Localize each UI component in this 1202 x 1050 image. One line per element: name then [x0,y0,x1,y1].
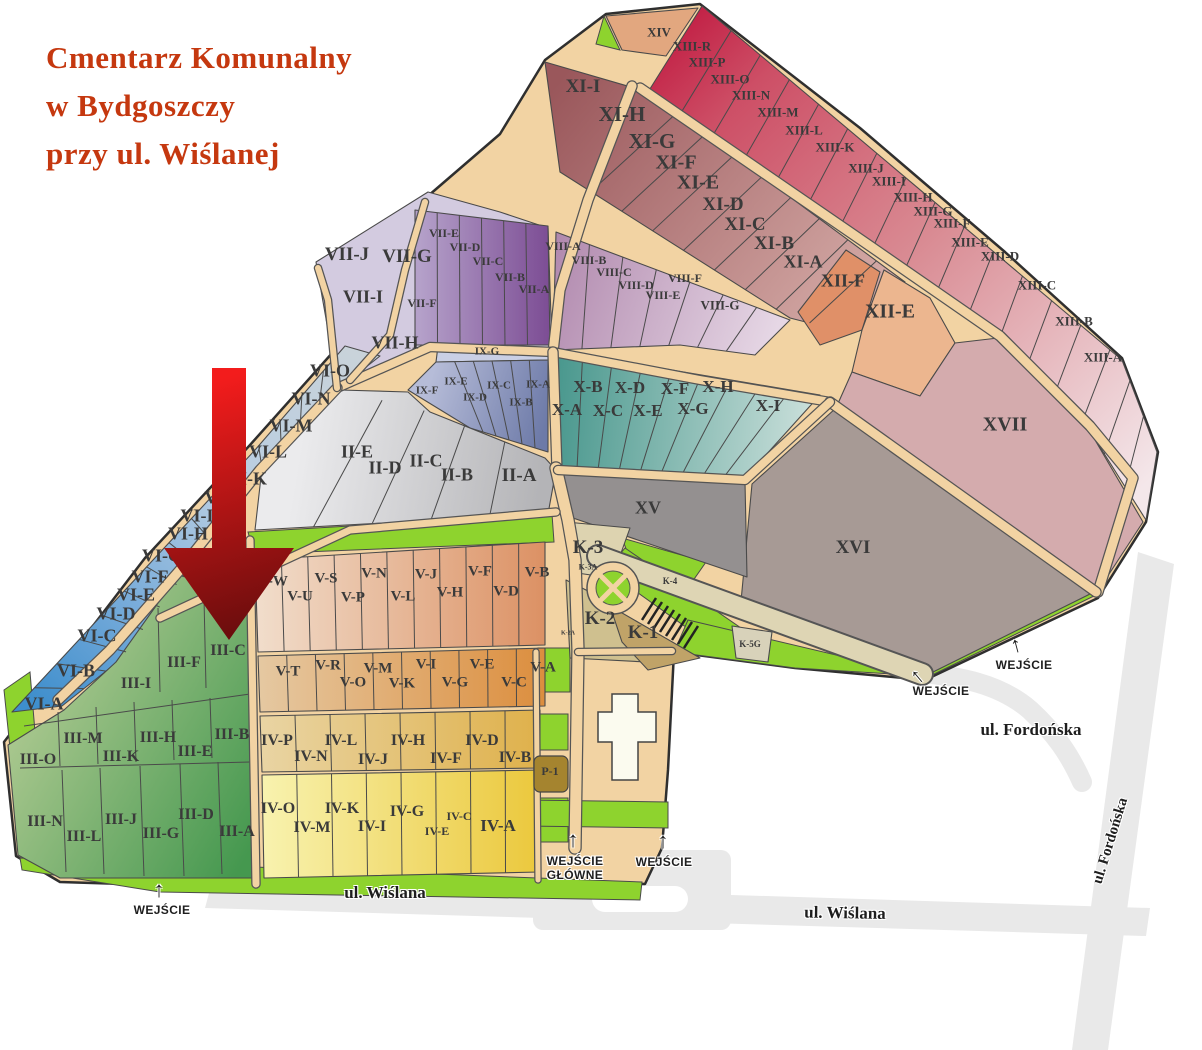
section-label-IX-F: IX-F [416,385,439,398]
section-label-IV-K: IV-K [325,800,359,818]
section-label-IV-A: IV-A [480,816,516,836]
section-label-V-A: V-A [530,659,556,676]
section-label-V-I: V-I [416,656,437,673]
section-label-V-G: V-G [442,674,468,691]
section-label-VII-F: VII-F [407,297,436,311]
section-label-IV-M: IV-M [293,819,330,837]
section-label-XIII-P: XIII-P [689,56,726,71]
section-label-XIII-O: XIII-O [710,73,749,88]
section-label-V-T: V-T [276,663,301,680]
section-label-XI-A: XI-A [784,252,823,273]
section-label-VII-J: VII-J [325,244,369,266]
section-label-VI-N: VI-N [292,389,331,410]
section-label-VI-G: VI-G [142,546,182,567]
section-label-VIII-E: VIII-E [646,289,681,303]
section-label-VI-M: VI-M [270,416,313,437]
section-label-XII-E: XII-E [865,301,915,324]
section-label-V-N: V-N [361,565,387,582]
section-label-V-L: V-L [391,588,416,605]
section-label-XIII-R: XIII-R [673,40,711,55]
section-label-IV-I: IV-I [358,818,386,836]
section-label-K-3: K-3 [573,537,604,559]
section-label-V-C: V-C [501,674,527,691]
section-label-V-K: V-K [389,675,415,692]
section-label-VI-H: VI-H [168,524,208,545]
section-label-III-K: III-K [103,748,139,766]
entrance-label-2: WEJŚCIE [134,904,191,918]
section-label-X-G: X-G [677,399,708,419]
section-label-III-L: III-L [67,828,102,846]
section-label-K-5G: K-5G [739,639,761,649]
section-label-V-J: V-J [415,566,437,583]
section-label-VII-C: VII-C [473,255,504,269]
section-label-X-B: X-B [573,377,602,397]
section-label-VI-B: VI-B [57,661,95,682]
section-label-XIII-L: XIII-L [785,124,823,139]
section-label-IV-O: IV-O [261,800,295,818]
section-label-XIII-D: XIII-D [981,250,1019,265]
section-label-VIII-A: VIII-A [545,240,580,254]
section-label-II-B: II-B [441,465,473,486]
section-label-III-A: III-A [219,823,255,841]
section-label-III-B: III-B [215,726,250,744]
section-label-K-2: K-2 [585,608,616,630]
section-label-X-E: X-E [633,401,662,421]
entrance-arrow-icon: ↑ [568,827,579,853]
section-label-III-J: III-J [105,811,137,829]
section-label-X-C: X-C [593,401,623,421]
section-label-XVII: XVII [983,414,1027,437]
section-label-V-R: V-R [315,657,341,674]
section-label-III-I: III-I [121,675,151,693]
section-label-IV-B: IV-B [499,749,532,767]
section-label-X-D: X-D [615,378,645,398]
section-label-VII-G: VII-G [382,246,432,268]
street-label-2: ul. Fordońska [980,720,1081,740]
section-label-V-U: V-U [287,588,313,605]
street-label-1: ul. Wiślana [804,903,886,924]
section-label-VII-A: VII-A [519,283,550,297]
section-label-II-C: II-C [409,451,442,472]
section-label-XI-H: XI-H [599,102,646,126]
section-label-V-B: V-B [525,564,550,581]
section-label-IX-D: IX-D [463,392,487,405]
section-label-XIII-F: XIII-F [934,217,971,232]
section-label-VI-A: VI-A [25,694,64,715]
section-label-V-F: V-F [468,563,492,580]
section-label-VI-L: VI-L [249,442,287,463]
section-label-VI-E: VI-E [117,585,155,606]
section-label-II-D: II-D [368,458,401,479]
section-label-K-1: K-1 [628,622,659,644]
section-label-VIII-F: VIII-F [668,272,702,286]
section-label-XIII-K: XIII-K [815,141,854,156]
section-label-III-D: III-D [178,806,214,824]
section-label-VI-K: VI-K [227,469,267,490]
entrance-arrow-icon: ↑ [1007,631,1024,659]
section-label-IX-B: IX-B [509,397,532,410]
section-label-VI-D: VI-D [97,604,136,625]
section-label-IV-F: IV-F [430,750,462,768]
section-label-XIII-M: XIII-M [757,106,798,121]
section-label-XIII-A: XIII-A [1084,351,1122,366]
section-label-IV-D: IV-D [465,732,498,750]
section-label-XVI: XVI [836,537,871,559]
section-label-K-4: K-4 [663,576,678,586]
street-label-3: ul. Fordońska [1090,796,1133,886]
section-label-VIII-G: VIII-G [700,299,739,314]
section-label-III-F: III-F [167,654,201,672]
section-label-K-2A: K-2A [561,631,575,638]
section-label-IX-G: IX-G [475,346,499,359]
section-label-VI-O: VI-O [310,361,350,382]
entrance-arrow-icon: ↑ [904,663,929,690]
title-line-2: w Bydgoszczy [46,82,352,130]
section-label-X-I: X-I [756,396,781,416]
section-label-XI-E: XI-E [677,172,719,195]
entrance-arrow-icon: ↑ [658,828,669,854]
section-label-IV-L: IV-L [325,732,358,750]
section-label-IV-G: IV-G [390,803,424,821]
entrance-arrow-icon: ↑ [154,877,165,903]
section-label-V-W: V-W [258,573,288,590]
section-label-III-H: III-H [140,729,176,747]
section-label-IV-J: IV-J [358,751,388,769]
section-label-XV: XV [635,498,661,519]
section-label-IV-P: IV-P [261,732,293,750]
entrance-label-1: WEJŚCIE [636,856,693,870]
section-label-XIV: XIV [647,26,671,41]
section-label-P-1: P-1 [541,765,558,779]
entrance-label-0: WEJŚCIE GŁÓWNE [547,855,604,883]
section-label-III-E: III-E [178,743,213,761]
section-label-V-H: V-H [437,584,463,601]
section-label-XII-F: XII-F [821,271,865,292]
title-line-3: przy ul. Wiślanej [46,130,352,178]
section-label-III-M: III-M [63,730,102,748]
section-label-IX-E: IX-E [444,376,467,389]
section-label-K-3A: K-3A [579,562,598,571]
section-label-IX-C: IX-C [487,380,511,393]
section-label-II-A: II-A [502,465,537,487]
cemetery-map: Cmentarz Komunalny w Bydgoszczy przy ul.… [0,0,1202,1050]
section-label-X-A: X-A [552,400,582,420]
section-label-IV-H: IV-H [391,732,425,750]
section-label-V-S: V-S [314,570,337,587]
section-label-IX-A: IX-A [526,379,550,392]
section-label-VI-C: VI-C [78,626,117,647]
section-label-XI-G: XI-G [629,129,676,153]
section-label-VII-H: VII-H [371,333,418,354]
section-label-XI-I: XI-I [566,76,601,98]
section-label-III-O: III-O [20,751,56,769]
section-label-IV-E: IV-E [425,825,449,839]
map-title: Cmentarz Komunalny w Bydgoszczy przy ul.… [46,34,352,178]
section-label-V-O: V-O [340,674,366,691]
section-label-XIII-B: XIII-B [1055,315,1093,330]
street-label-0: ul. Wiślana [344,883,426,903]
section-label-VII-I: VII-I [343,287,383,308]
section-label-III-N: III-N [27,813,63,831]
section-label-XIII-C: XIII-C [1018,279,1056,294]
section-label-XIII-I: XIII-I [872,175,906,190]
section-label-V-D: V-D [493,583,519,600]
section-label-X-F: X-F [661,379,689,399]
section-label-VII-E: VII-E [429,227,459,241]
section-label-III-C: III-C [210,642,246,660]
entrance-label-3: WEJŚCIE [996,659,1053,673]
section-label-XI-D: XI-D [702,194,743,216]
title-line-1: Cmentarz Komunalny [46,34,352,82]
section-label-VII-D: VII-D [450,241,481,255]
section-label-IV-C: IV-C [446,810,471,824]
section-label-V-P: V-P [341,589,365,606]
section-label-X-H: X-H [702,377,733,397]
section-label-IV-N: IV-N [294,748,327,766]
section-label-III-G: III-G [143,825,179,843]
section-label-V-E: V-E [470,656,495,673]
section-label-XIII-N: XIII-N [732,89,770,104]
